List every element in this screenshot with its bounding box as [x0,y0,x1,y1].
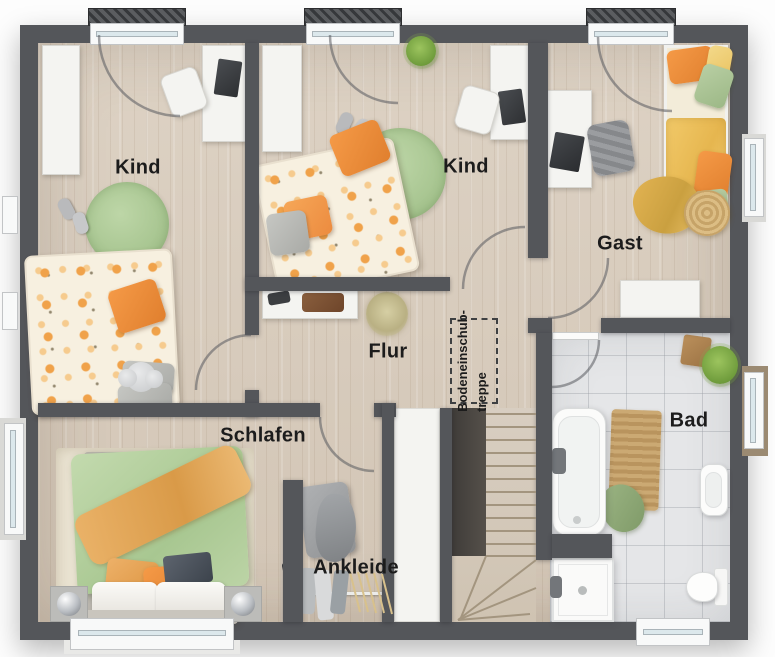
bath-drain-icon [573,516,581,524]
exterior-vent [2,292,18,330]
stair-void [452,408,486,556]
room-label-gast: Gast [597,233,643,256]
shower-drain-icon [578,586,587,595]
wall-kind2-gast [528,43,548,258]
room-label-flur: Flur [369,341,408,364]
room-label-kind-1: Kind [115,157,161,180]
sideboard [620,280,700,318]
floor-plan: Bodeneinschub- treppe Kind Kind Gast Flu… [0,0,775,657]
wall-tub-shower [552,534,612,558]
bath-faucet-icon [552,448,566,474]
plant-icon [702,346,738,384]
wicker-rug [684,190,730,236]
wall-ankleide-east [382,403,394,622]
lamp-icon [231,592,255,616]
window-glass [750,144,756,211]
room-label-schlafen: Schlafen [220,425,306,448]
window-glass [78,630,226,636]
bathroom-door-leaf [552,332,599,340]
room-label-kind-2: Kind [443,156,489,179]
wall-kind2-flur [245,277,450,291]
wall-kind1-kind2 [245,43,259,335]
wall-stair-bad [536,333,552,560]
wardrobe [262,45,302,152]
laptop-icon [549,132,585,173]
wall-gast-bad [601,318,730,333]
dry-grass-plant-icon [366,292,408,336]
wall-corner [528,318,552,333]
window-glass [594,31,668,37]
wardrobe [42,45,80,175]
tray [302,293,344,312]
window-glass [750,378,756,443]
lamp-icon [57,592,81,616]
room-label-bad: Bad [670,410,709,433]
window-glass [643,629,703,635]
sink-basin [705,472,722,508]
wall-schlafen-north [38,403,320,417]
plant-icon [406,36,436,66]
shower-faucet-icon [550,576,562,598]
room-label-ankleide: Ankleide [313,557,399,580]
computer-monitor-icon [214,59,243,98]
cloud-table [126,362,156,392]
toilet-bowl [686,572,718,602]
bed-pillow [265,209,310,256]
attic-hatch-label: Bodeneinschub- treppe [454,310,492,412]
attic-hatch-label-line1: Bodeneinschub- [455,310,470,412]
wall-schlafen-ankleide [283,480,303,622]
tall-cabinet [394,408,440,622]
pouf [586,119,636,178]
window-glass [96,31,178,37]
window-glass [10,430,16,528]
window-glass [312,31,394,37]
wall-stair-west [440,408,452,622]
computer-monitor-icon [498,88,526,125]
exterior-vent [2,196,18,234]
attic-hatch-label-line2: treppe [474,372,489,412]
